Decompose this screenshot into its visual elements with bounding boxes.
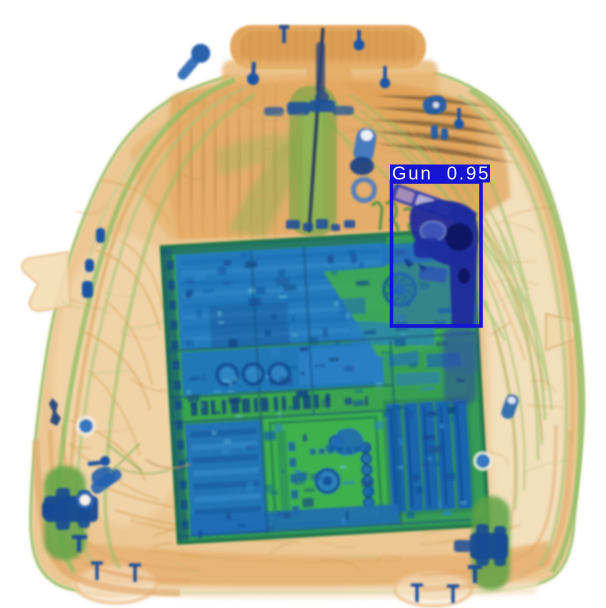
svg-text:Gun 0.95: Gun 0.95 (392, 163, 490, 184)
